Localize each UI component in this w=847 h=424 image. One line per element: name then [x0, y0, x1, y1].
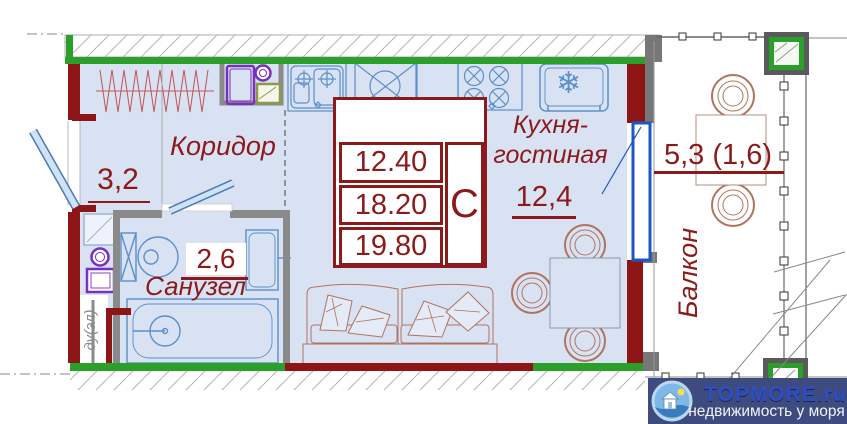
chair [712, 75, 754, 117]
corridor-label: Коридор [153, 131, 293, 163]
info-value-row: 19.80 [339, 227, 443, 266]
kitchen-living-area: 12,4 [510, 181, 578, 214]
watermark-logo: TOPMORE.ru недвижимость у моря [648, 378, 847, 424]
info-value-row: 12.40 [339, 142, 443, 183]
balcony-column-top [764, 32, 809, 75]
balcony-area: 5,3 (1,6) [648, 139, 788, 172]
floor-plan: Коридор 3,2 Кухня- гостиная 12,4 5,3 (1,… [0, 0, 847, 424]
balcony-label: Балкон [673, 198, 701, 348]
shaft-label: ду(эл) [82, 291, 98, 369]
apartment-info-box: 12.40 18.20 19.80 С [333, 97, 487, 268]
kitchen-living-label: Кухня- гостиная [478, 111, 623, 170]
watermark-tagline: недвижимость у моря [688, 403, 845, 421]
info-value-row: 18.20 [339, 185, 443, 225]
chair [712, 184, 754, 226]
apartment-type-letter: С [445, 142, 484, 266]
dining-table [550, 258, 620, 328]
balcony-area-underline [654, 171, 784, 174]
kitchen-living-area-underline [512, 216, 576, 219]
bathroom-label: Санузел [133, 271, 258, 302]
snowflake-icon: ❄ [556, 66, 581, 101]
corridor-area: 3,2 [86, 163, 150, 197]
water-heater [257, 84, 280, 103]
corridor-area-underline [88, 201, 150, 203]
